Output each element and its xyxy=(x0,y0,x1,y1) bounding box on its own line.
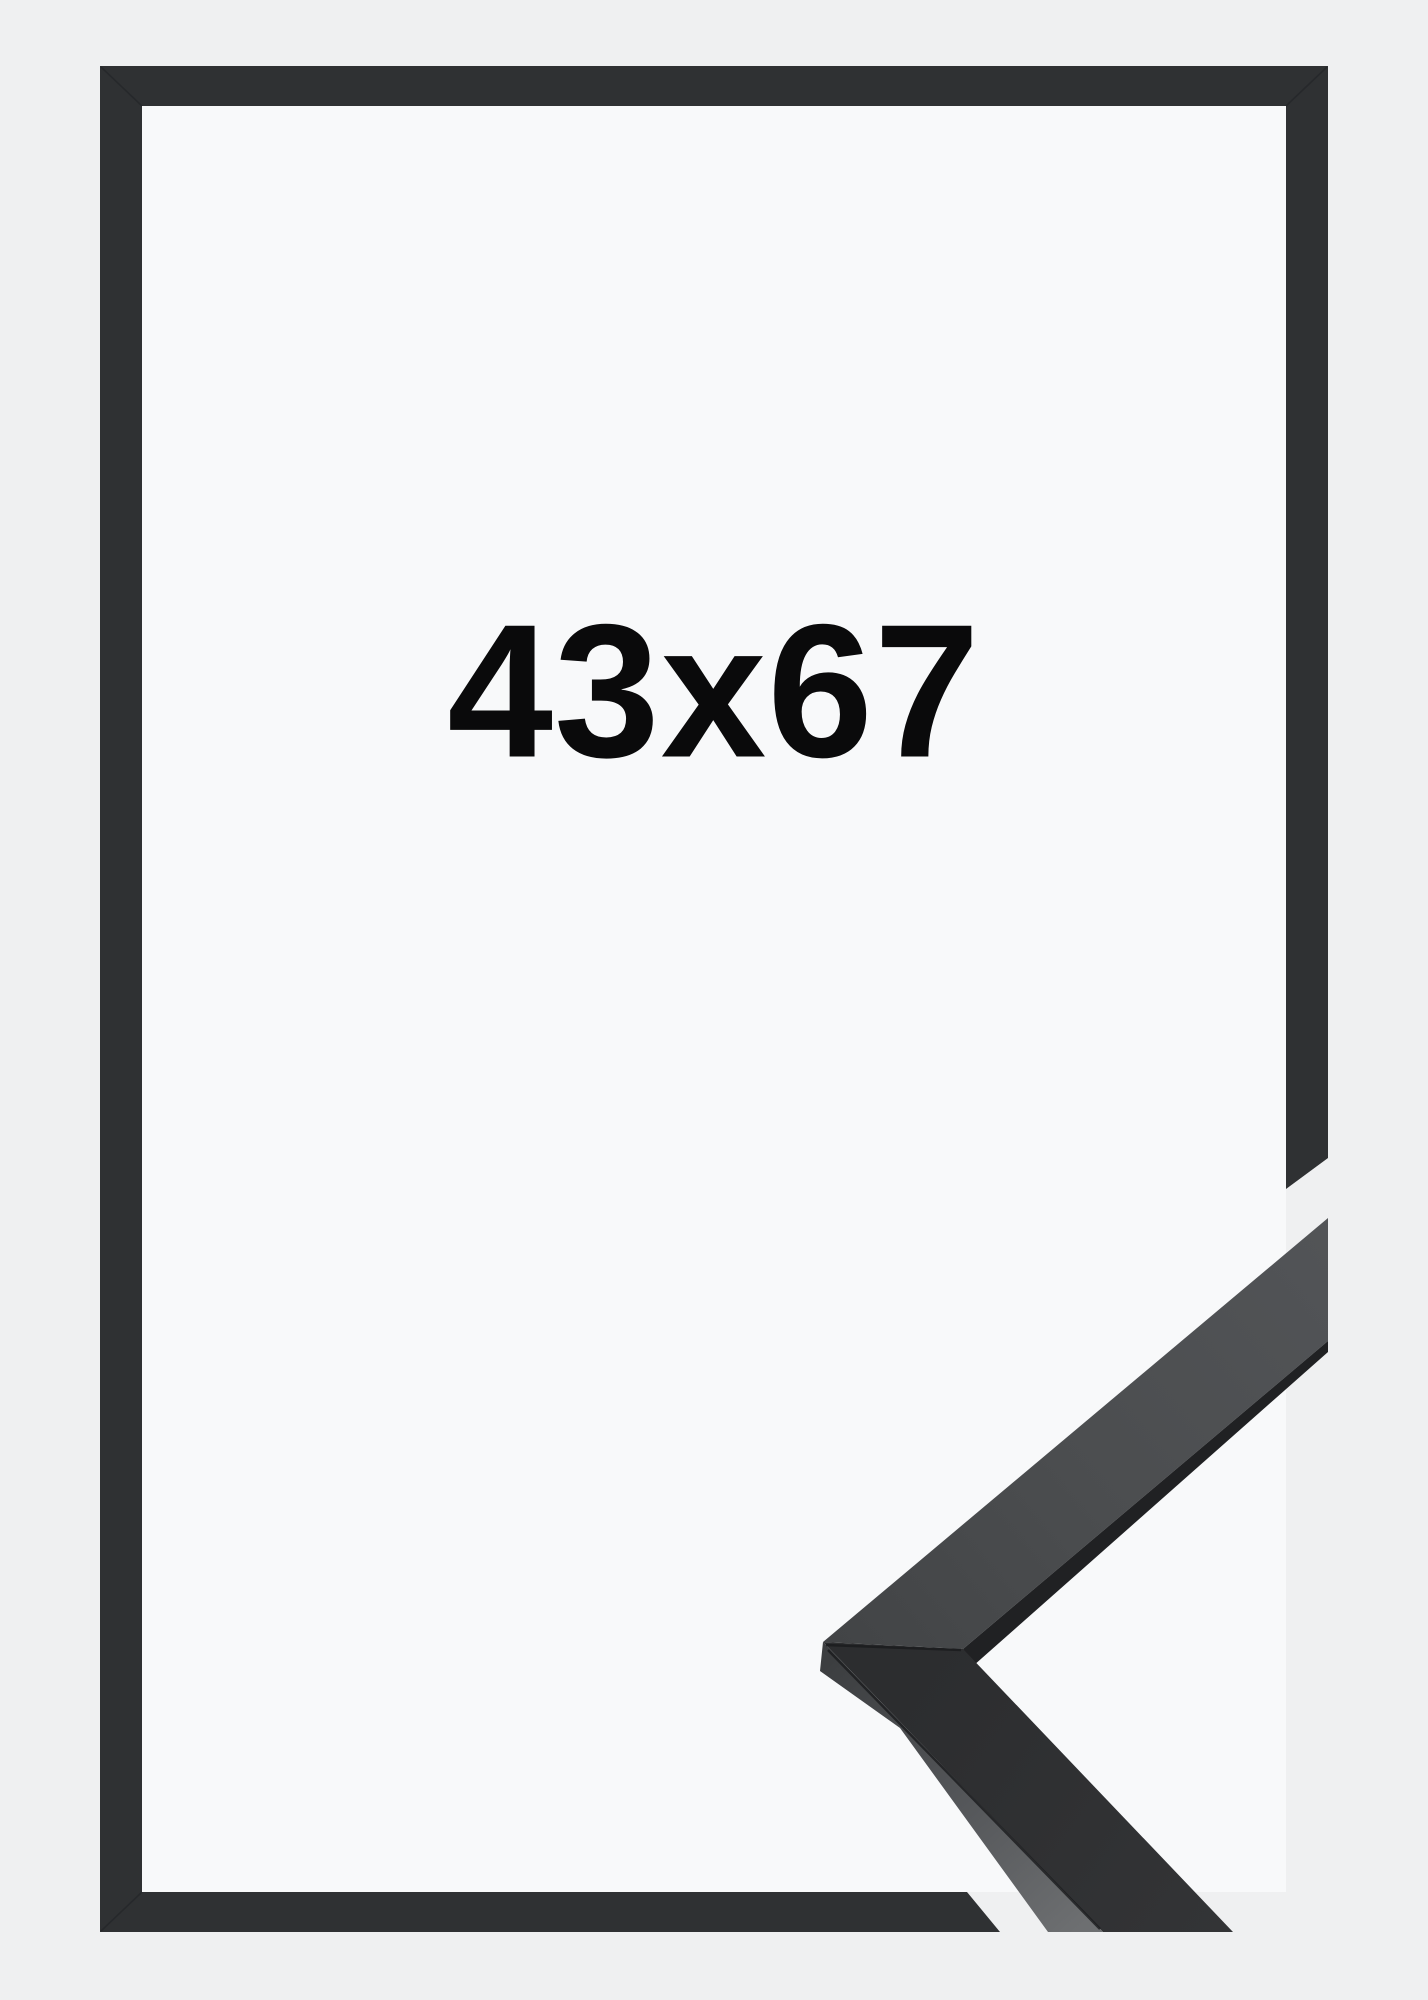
product-photo: 43x67 xyxy=(0,0,1428,2000)
frame-bottom-bar xyxy=(100,1892,1000,1932)
frame-left-bar xyxy=(100,66,142,1932)
frame-photo-graphic xyxy=(0,0,1428,2000)
frame-top-bar xyxy=(100,66,1328,106)
frame-inner-backdrop xyxy=(142,106,1286,1892)
size-label: 43x67 xyxy=(0,582,1428,800)
